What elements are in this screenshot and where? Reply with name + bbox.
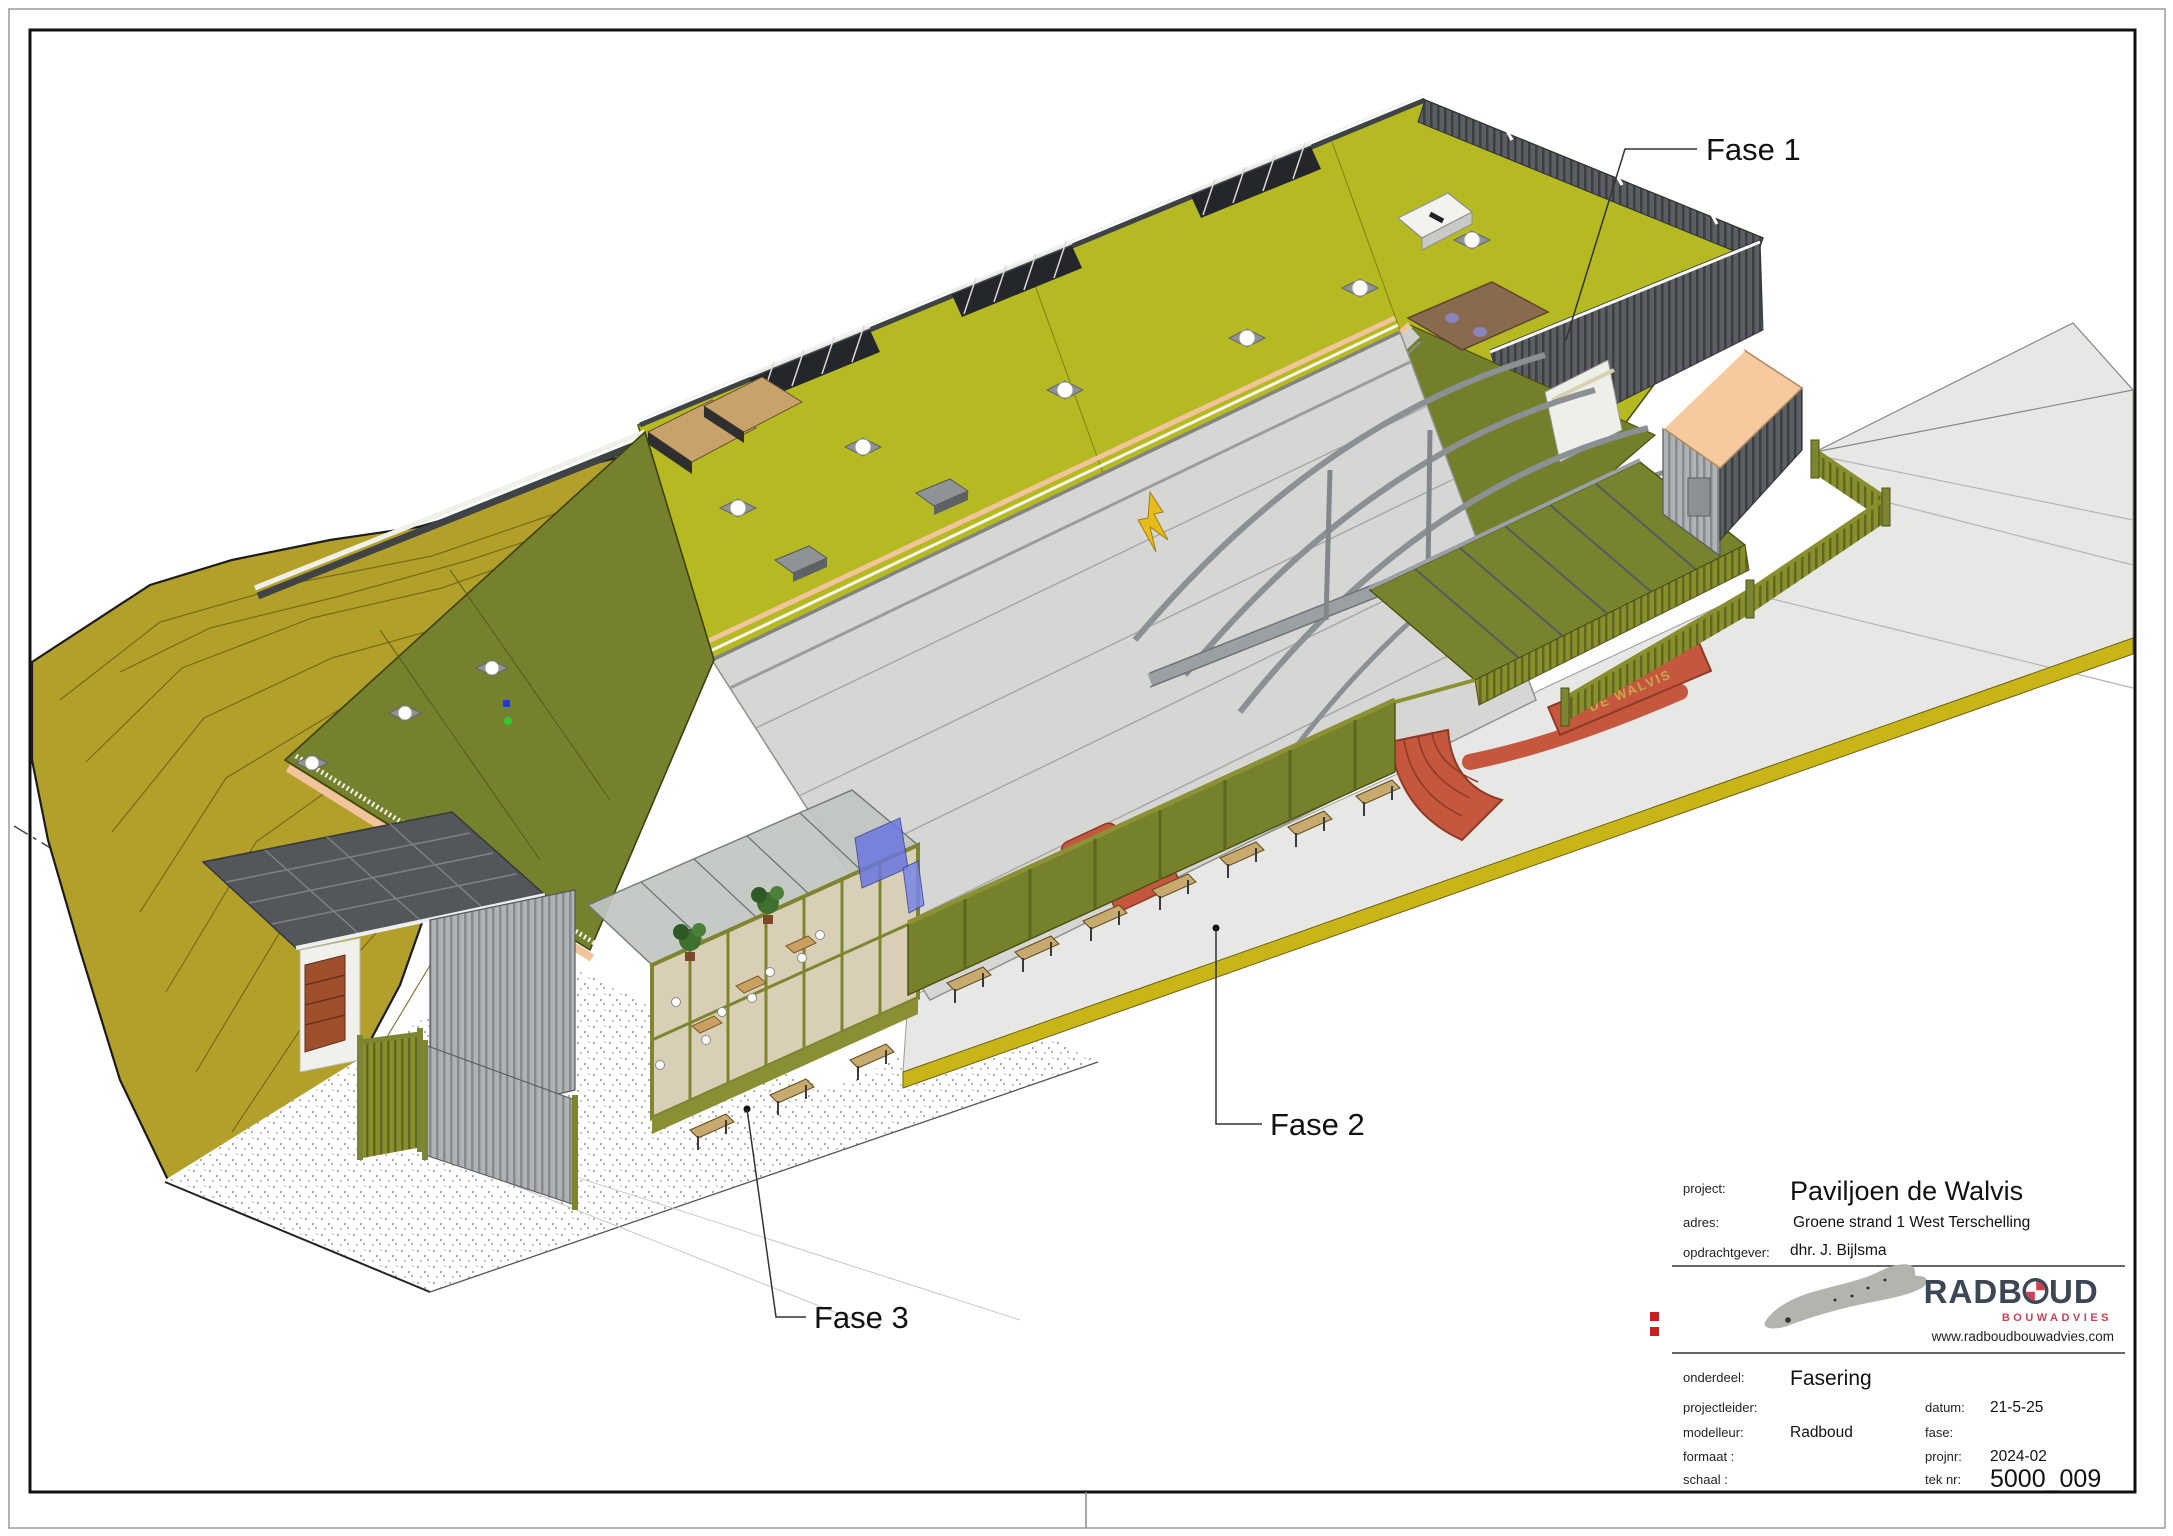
formaat-label: formaat : [1683,1449,1734,1464]
teknr-label: tek nr: [1925,1472,1961,1487]
opdrachtgever-label: opdrachtgever: [1683,1245,1770,1260]
logo-url: www.radboudbouwadvies.com [1931,1329,2114,1344]
fase-label: fase: [1925,1425,1953,1440]
teknr-value: 5000_009 [1990,1465,2101,1493]
projnr-value: 2024-02 [1990,1448,2047,1465]
modelleur-value: Radboud [1790,1424,1853,1441]
modelleur-label: modelleur: [1683,1425,1744,1440]
adres-value: Groene strand 1 West Terschelling [1793,1214,2030,1231]
datum-label: datum: [1925,1400,1965,1415]
drawing-sheet: DE WALVIS [0,0,2173,1536]
registration-mark [1650,1312,1659,1321]
onderdeel-value: Fasering [1790,1367,1872,1390]
fase2-label: Fase 2 [1270,1107,1365,1142]
datum-value: 21-5-25 [1990,1399,2043,1416]
project-label: project: [1683,1181,1726,1196]
fase1-label: Fase 1 [1706,132,1801,167]
onderdeel-label: onderdeel: [1683,1370,1744,1385]
gate [360,1028,420,1160]
green-marker-icon [504,717,512,725]
projnr-label: projnr: [1925,1449,1962,1464]
architectural-drawing: DE WALVIS [0,0,2173,1536]
logo-subtitle: BOUWADVIES [2002,1312,2112,1324]
projectleider-label: projectleider: [1683,1400,1757,1415]
logo-text-part2: UD [2049,1273,2099,1310]
fase3-label: Fase 3 [814,1300,909,1335]
logo-target-icon [2023,1278,2049,1304]
opdrachtgever-value: dhr. J. Bijlsma [1790,1242,1887,1259]
project-value: Paviljoen de Walvis [1790,1176,2023,1206]
schaal-label: schaal : [1683,1472,1728,1487]
registration-mark [1650,1327,1659,1336]
blue-marker-icon [503,700,510,707]
logo-text-part1: RADB [1924,1273,2023,1310]
adres-label: adres: [1683,1215,1719,1230]
